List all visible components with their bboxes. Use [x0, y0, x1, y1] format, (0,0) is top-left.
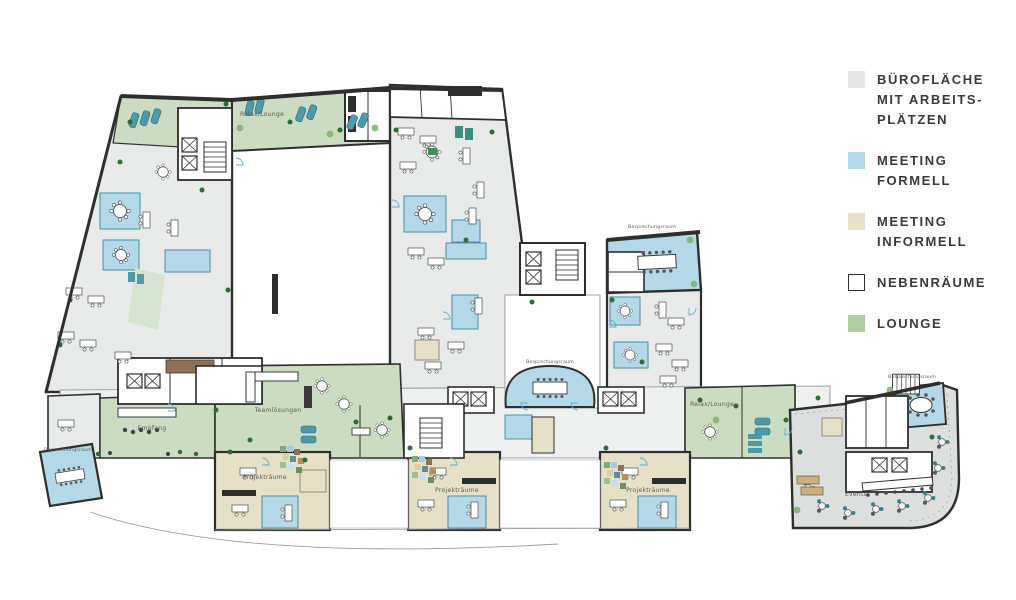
nebenraeume-label: NEBENRÄUME [877, 273, 986, 293]
legend-line: BÜROFLÄCHE [877, 70, 984, 90]
legend-line: MEETING [877, 212, 967, 232]
core-events-rooms [846, 396, 908, 448]
room-wet-center [505, 415, 532, 439]
legend-line: MIT ARBEITS- [877, 90, 984, 110]
label-projektraeume-1: Projekträume [243, 474, 287, 481]
label-besprechungsraum-events: Besprechungsraum [888, 374, 936, 380]
meeting-informell-label: MEETING INFORMELL [877, 212, 967, 252]
meeting-informell-swatch [848, 213, 865, 230]
legend-line: MEETING [877, 151, 951, 171]
label-besprechungsraum-center: Besprechungsraum [526, 359, 574, 365]
legend-line: NEBENRÄUME [877, 273, 986, 293]
label-relax-lounge-top: Relax/Lounge [240, 111, 284, 118]
room-informell-center [532, 417, 554, 453]
label-projektraeume-2: Projekträume [435, 487, 479, 494]
legend-item-lounge: LOUNGE [848, 314, 1008, 334]
lounge-label: LOUNGE [877, 314, 942, 334]
legend-item-nebenraeume: NEBENRÄUME [848, 273, 1008, 293]
label-besprechungsraum-north: Besprechungsraum [628, 224, 676, 230]
legend-line: INFORMELL [877, 232, 967, 252]
legend-item-bueroflaeche: BÜROFLÄCHE MIT ARBEITS- PLÄTZEN [848, 70, 1008, 130]
meeting-formell-swatch [848, 152, 865, 169]
label-events: Events [845, 491, 867, 498]
nebenraeume-swatch [848, 274, 865, 291]
label-teamloesungen: Teamlösungen [254, 407, 302, 414]
legend-line: FORMELL [877, 171, 951, 191]
terrace-2 [500, 460, 600, 528]
bueroflaeche-swatch [848, 71, 865, 88]
zone-lounge-relax-right [685, 385, 795, 458]
label-empfang: Empfang [138, 425, 167, 432]
label-relax-lounge-right: Relax/Lounge [690, 401, 734, 408]
legend-line: LOUNGE [877, 314, 942, 334]
legend-item-meeting-informell: MEETING INFORMELL [848, 212, 1008, 252]
meeting-formell-label: MEETING FORMELL [877, 151, 951, 191]
bueroflaeche-label: BÜROFLÄCHE MIT ARBEITS- PLÄTZEN [877, 70, 984, 130]
lounge-swatch [848, 315, 865, 332]
legend-item-meeting-formell: MEETING FORMELL [848, 151, 1008, 191]
label-besprechungsraum-southwest: Besprechungsraum [44, 447, 92, 453]
legend-line: PLÄTZEN [877, 110, 984, 130]
legend: BÜROFLÄCHE MIT ARBEITS- PLÄTZEN MEETING … [848, 70, 1008, 355]
terrace-1 [330, 460, 408, 528]
label-projektraeume-3: Projekträume [626, 487, 670, 494]
